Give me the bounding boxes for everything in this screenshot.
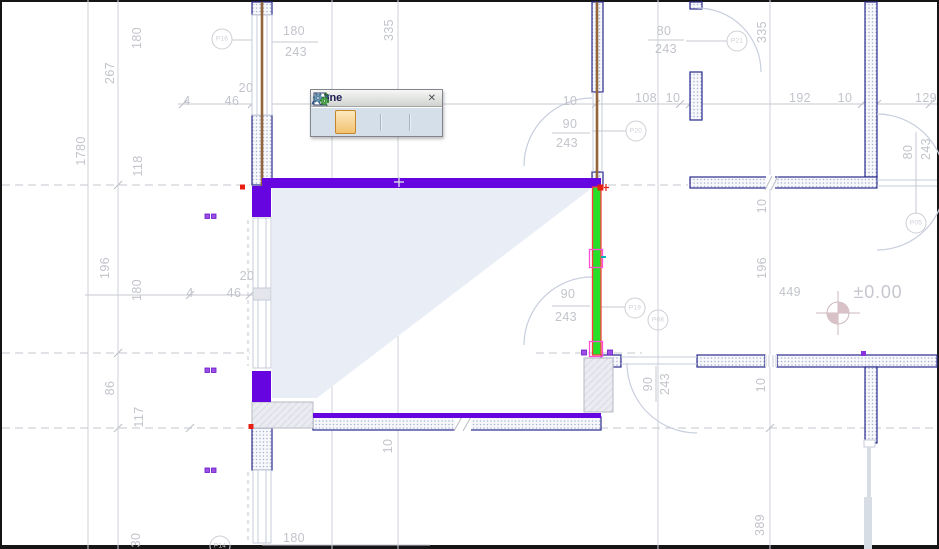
- dimension-ticks: [114, 100, 934, 432]
- zone-tool-button[interactable]: [314, 110, 335, 134]
- cad-viewport[interactable]: 1802671780118335180243204461010810192101…: [0, 0, 939, 549]
- toolbar-separator: [409, 114, 410, 131]
- close-icon[interactable]: ✕: [427, 93, 437, 104]
- zone-fill[interactable]: [272, 188, 592, 398]
- selected-wall-green[interactable]: [593, 187, 602, 355]
- zone-toolbar[interactable]: Zone ✕: [310, 89, 443, 137]
- toolbar-separator: [380, 114, 381, 131]
- gears-icon: [311, 90, 331, 108]
- elevation-marker: [816, 291, 860, 335]
- zone-toolbar-body: [311, 107, 442, 136]
- zone-polygon-method-button[interactable]: [335, 110, 356, 134]
- floor-plan: [0, 0, 939, 549]
- update-zones-button[interactable]: [385, 110, 406, 134]
- zone-reference-method-button[interactable]: [356, 110, 377, 134]
- zone-toolbar-title: Zone: [316, 92, 427, 104]
- zone-settings-button[interactable]: [414, 110, 435, 134]
